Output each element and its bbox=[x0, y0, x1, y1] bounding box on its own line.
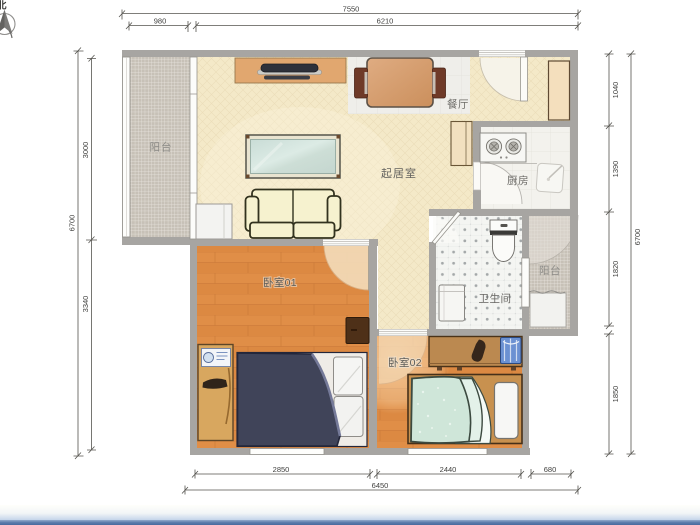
svg-text:1040: 1040 bbox=[611, 82, 620, 99]
svg-text:卧室01: 卧室01 bbox=[263, 276, 297, 289]
svg-text:2850: 2850 bbox=[273, 465, 290, 474]
svg-text:2440: 2440 bbox=[440, 465, 457, 474]
svg-text:3340: 3340 bbox=[81, 296, 90, 313]
svg-text:阳台: 阳台 bbox=[539, 264, 561, 277]
svg-text:680: 680 bbox=[544, 465, 557, 474]
svg-text:餐厅: 餐厅 bbox=[447, 98, 469, 111]
svg-text:厨房: 厨房 bbox=[507, 174, 529, 187]
svg-text:6450: 6450 bbox=[372, 481, 389, 490]
svg-text:卧室02: 卧室02 bbox=[388, 356, 422, 369]
svg-text:980: 980 bbox=[154, 17, 167, 26]
svg-text:6700: 6700 bbox=[633, 229, 642, 246]
svg-text:7550: 7550 bbox=[343, 5, 360, 14]
svg-text:1850: 1850 bbox=[611, 386, 620, 403]
svg-text:阳台: 阳台 bbox=[150, 141, 173, 154]
svg-text:卫生间: 卫生间 bbox=[479, 292, 512, 305]
svg-text:6700: 6700 bbox=[68, 215, 77, 232]
svg-text:1820: 1820 bbox=[611, 261, 620, 278]
svg-text:1390: 1390 bbox=[611, 161, 620, 178]
svg-text:6210: 6210 bbox=[377, 17, 394, 26]
svg-text:3000: 3000 bbox=[81, 142, 90, 159]
svg-text:北: 北 bbox=[0, 0, 7, 12]
svg-text:起居室: 起居室 bbox=[381, 166, 417, 180]
